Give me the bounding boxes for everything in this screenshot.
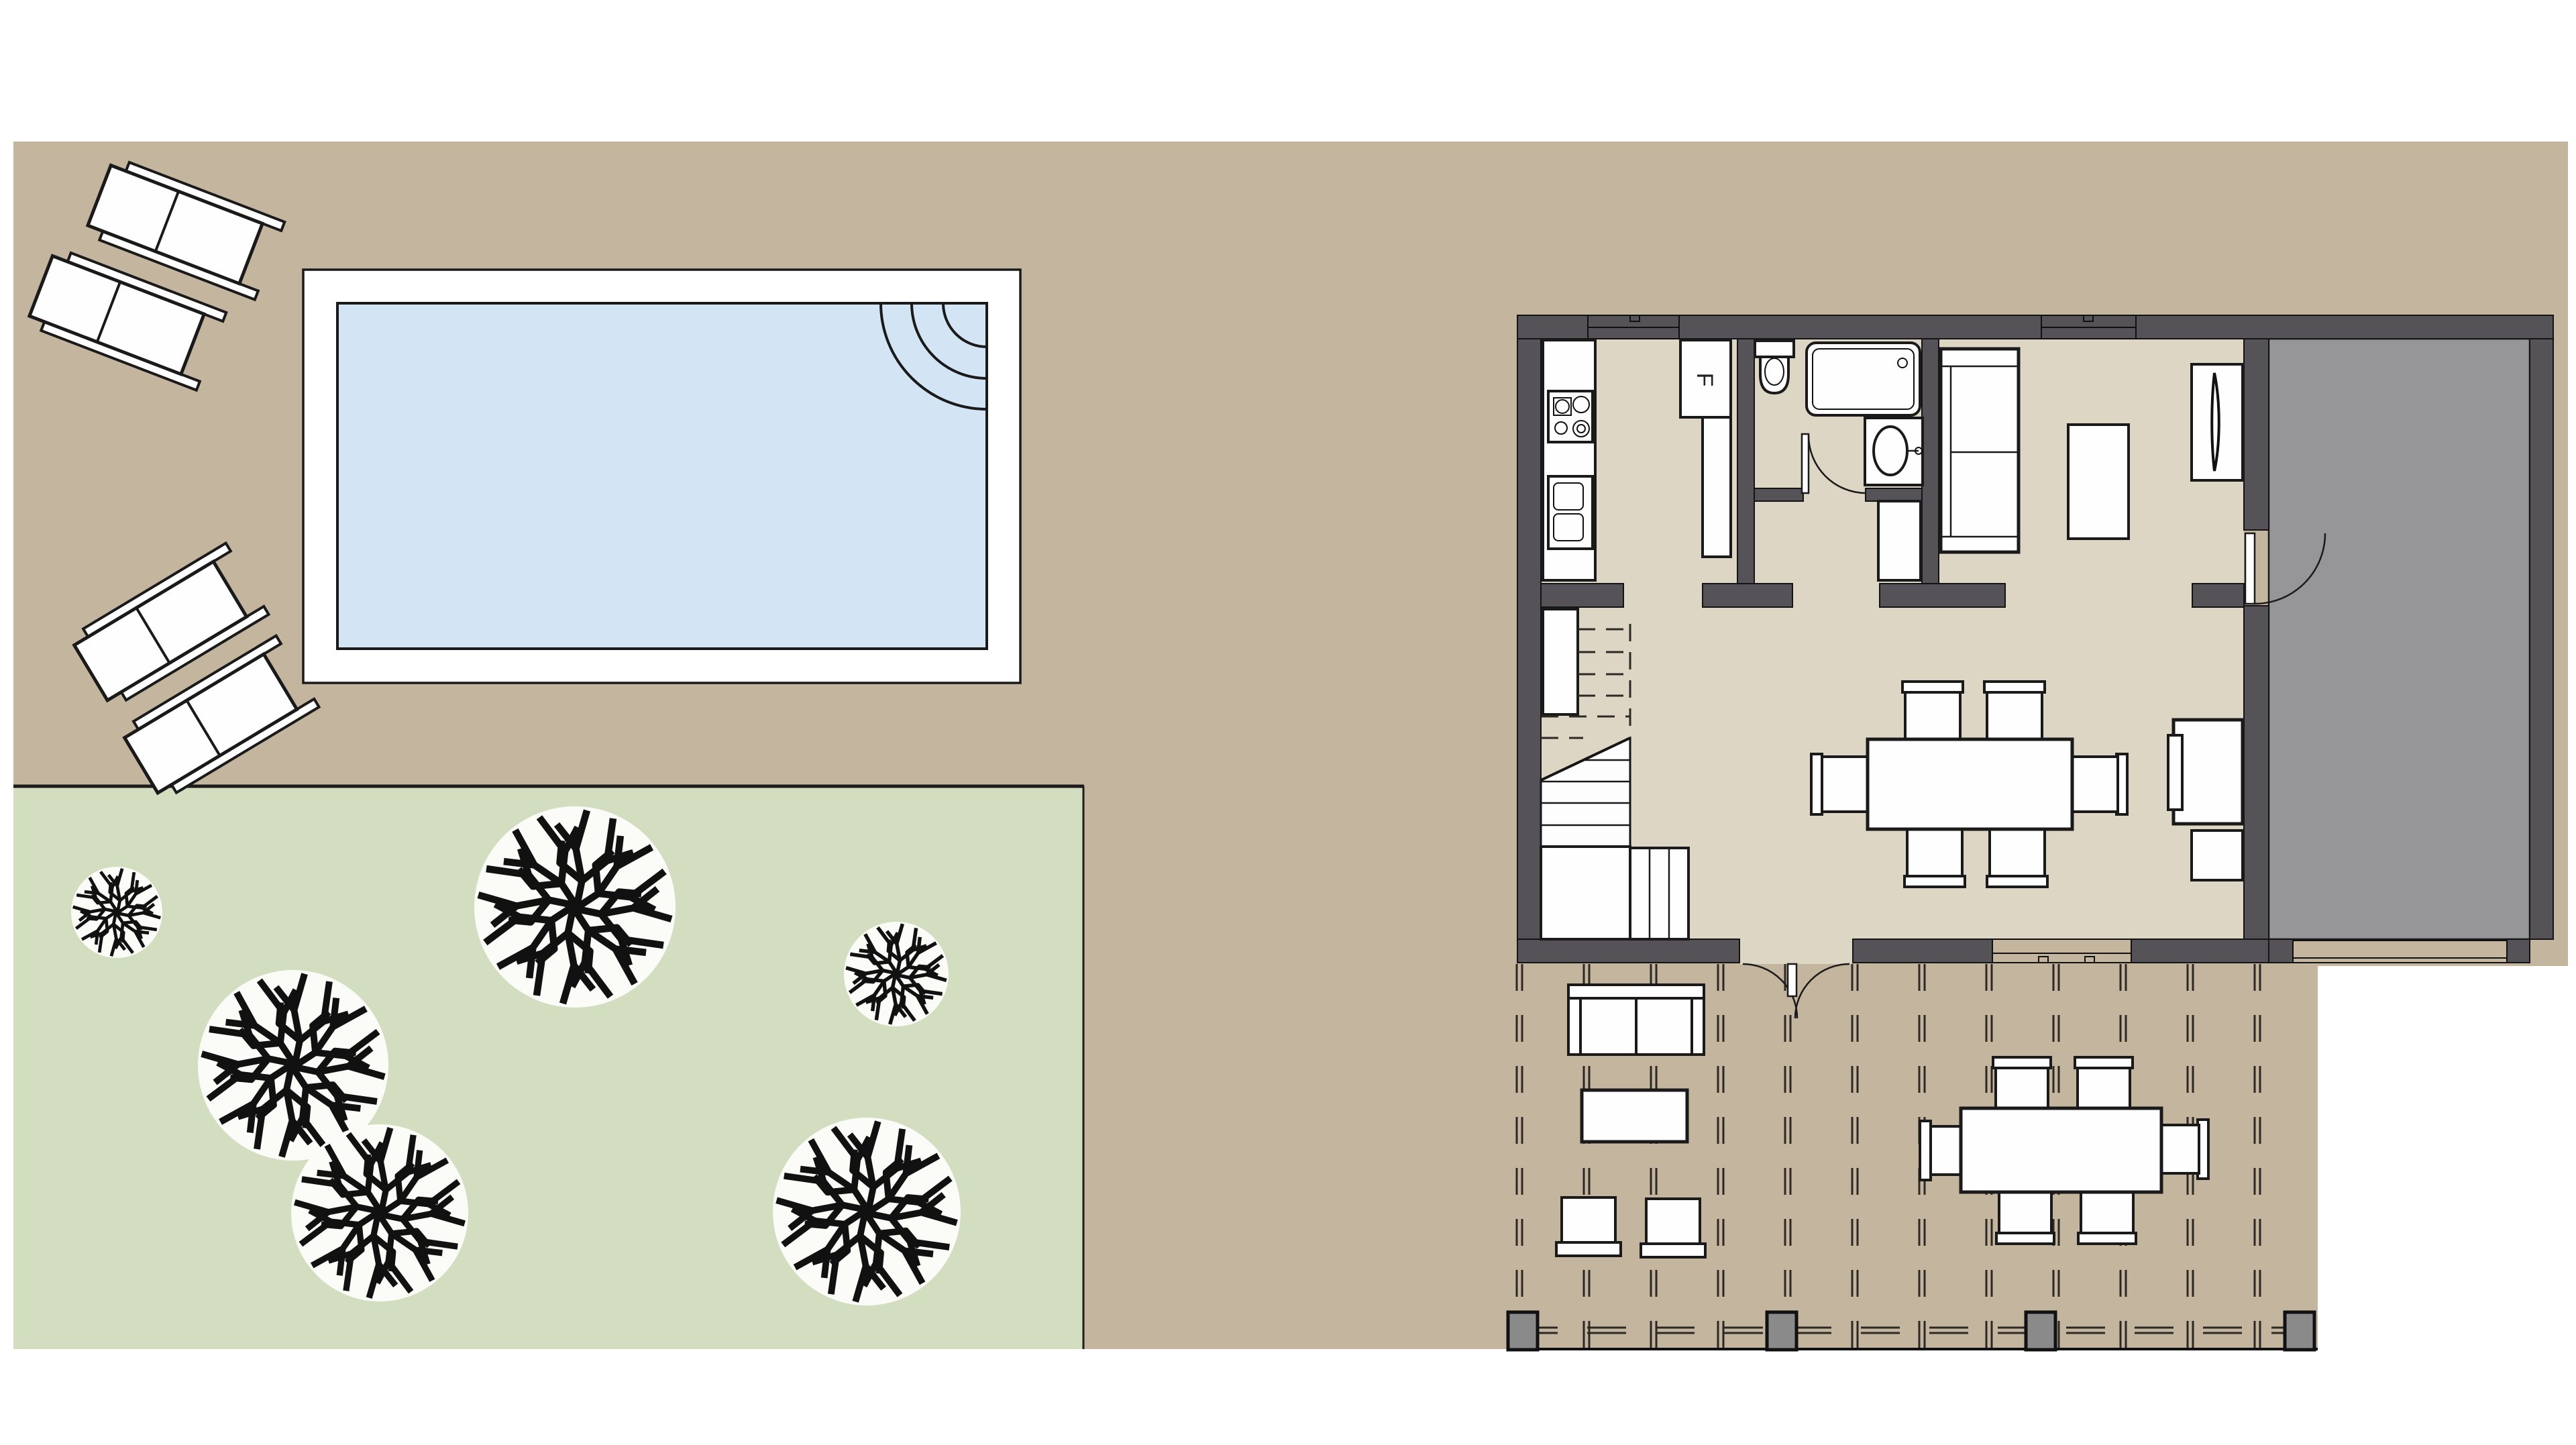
garage-door-stub <box>2507 939 2530 963</box>
wall-left <box>1517 339 1541 963</box>
pool <box>303 270 1020 683</box>
stair-closet <box>1543 609 1578 714</box>
bed <box>1941 349 2019 552</box>
wall-bottom-mid <box>1853 939 1992 963</box>
tv-screen <box>2212 373 2219 471</box>
wall-garage-right <box>2530 339 2553 939</box>
post <box>1767 1312 1796 1350</box>
post <box>2026 1312 2055 1350</box>
post <box>1508 1312 1538 1350</box>
fridge: F <box>1680 340 1731 417</box>
door-leaf <box>2245 533 2255 604</box>
wall-garage-shared-upper <box>2244 339 2269 530</box>
outdoor-coffee-table <box>1582 1090 1687 1142</box>
wall-mid-c <box>1880 584 2005 607</box>
armchair <box>2168 720 2243 824</box>
pool-water <box>337 303 987 649</box>
dining-chair <box>2072 754 2127 814</box>
tv-unit <box>2192 364 2243 480</box>
kitchen-sink <box>1548 476 1593 549</box>
outdoor-sofa <box>1568 985 1704 1055</box>
floor-plan: F <box>0 0 2576 1445</box>
outdoor-chair <box>1556 1197 1621 1256</box>
outdoor-chair <box>1641 1199 1705 1257</box>
dining-chair <box>1987 829 2047 887</box>
dining-table <box>1868 739 2072 829</box>
wall-bath-bottom-left <box>1754 488 1803 501</box>
door-leaf <box>1802 434 1809 493</box>
fridge-label: F <box>1692 373 1717 387</box>
wall-mid-b <box>1703 584 1792 607</box>
wall-bath-bedroom <box>1922 339 1939 606</box>
bath-door-threshold <box>1803 488 1866 501</box>
washbasin <box>1865 418 1923 485</box>
wall-mid-d <box>2192 584 2244 607</box>
hall-wardrobe <box>1878 501 1921 580</box>
understair-cupboard <box>1541 847 1630 939</box>
dining-chair <box>1811 754 1868 814</box>
garage-door-stub <box>2269 939 2293 963</box>
garage-floor <box>2269 339 2530 939</box>
wall-garage-shared-lower <box>2244 606 2269 939</box>
understair-cupboard <box>1630 848 1688 939</box>
dining-chair <box>1904 829 1965 887</box>
wall-kitchen-bath <box>1737 339 1754 606</box>
door-leaf <box>1788 964 1796 996</box>
kitchen-tall-unit <box>1703 417 1731 557</box>
wall-bottom-left <box>1517 939 1739 963</box>
wall-bath-bottom-right <box>1866 488 1922 501</box>
dining-chair <box>1902 682 1963 739</box>
outdoor-dining-table <box>1961 1108 2161 1192</box>
cooktop <box>1548 391 1593 442</box>
wall-mid-a <box>1541 584 1623 607</box>
entrance-threshold <box>1739 939 1853 964</box>
floor-plan-page: F <box>0 0 2576 1445</box>
bedroom-table <box>2068 425 2129 539</box>
toilet <box>1755 341 1794 393</box>
side-unit <box>2192 831 2243 880</box>
bathtub <box>1807 343 1920 415</box>
post <box>2285 1312 2314 1350</box>
dining-chair <box>1984 682 2045 739</box>
